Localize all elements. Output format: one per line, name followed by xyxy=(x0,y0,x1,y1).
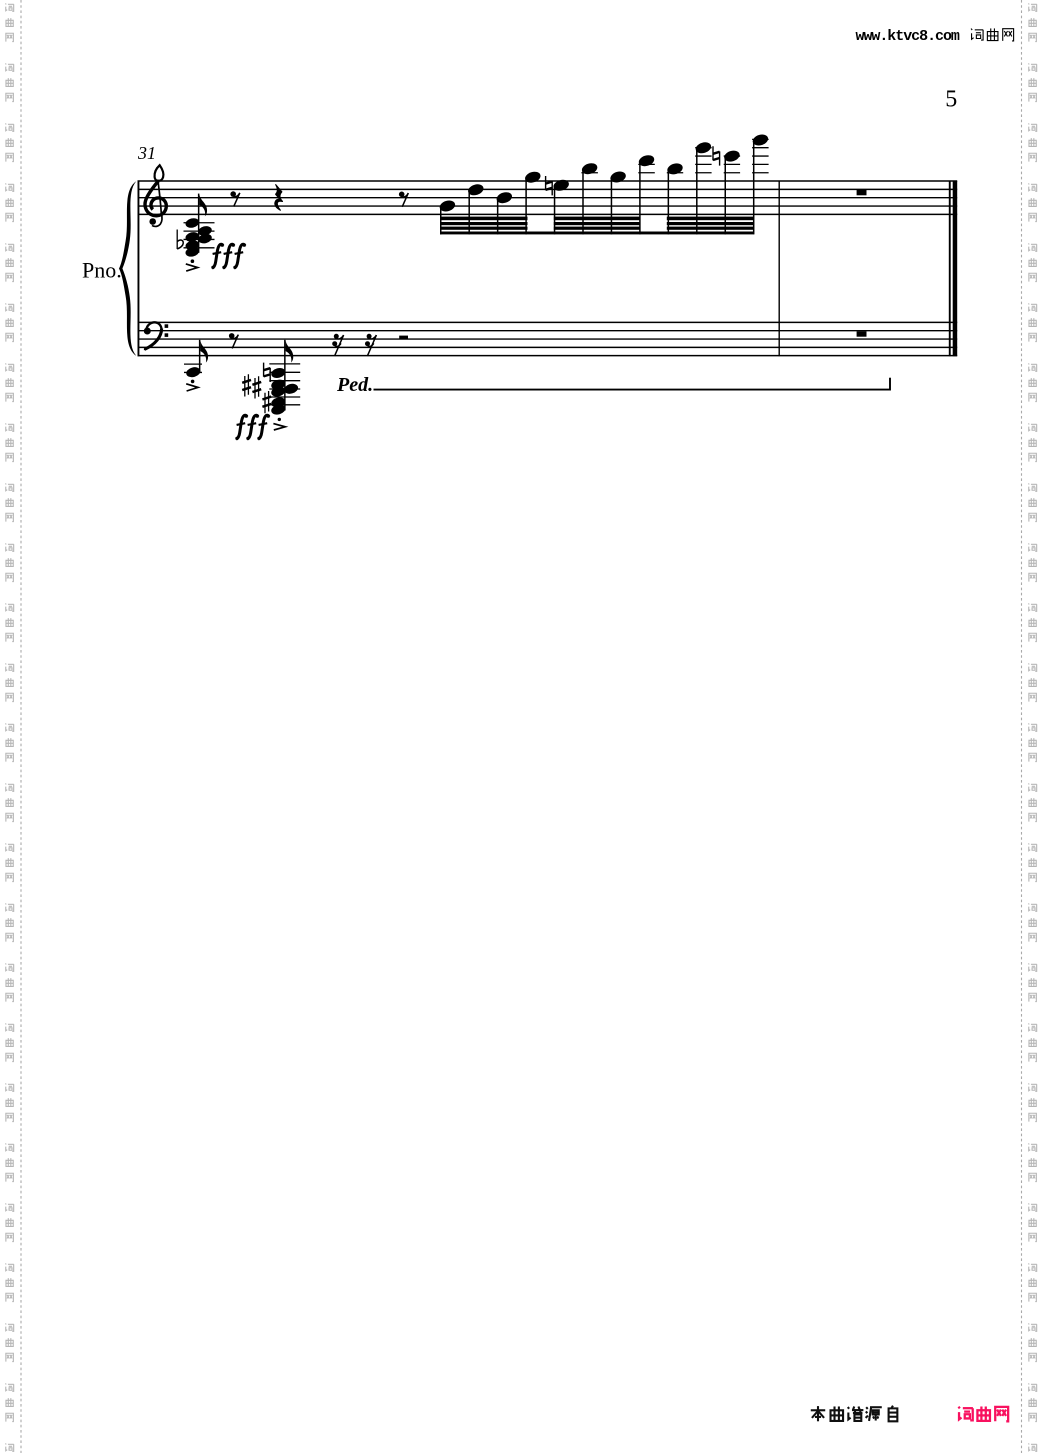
svg-text:Ped.: Ped. xyxy=(336,374,373,396)
svg-text:5: 5 xyxy=(945,87,957,113)
svg-text:www.ktvc8.com: www.ktvc8.com xyxy=(856,28,960,45)
svg-text:31: 31 xyxy=(137,143,156,163)
svg-text:Pno.: Pno. xyxy=(82,258,122,283)
